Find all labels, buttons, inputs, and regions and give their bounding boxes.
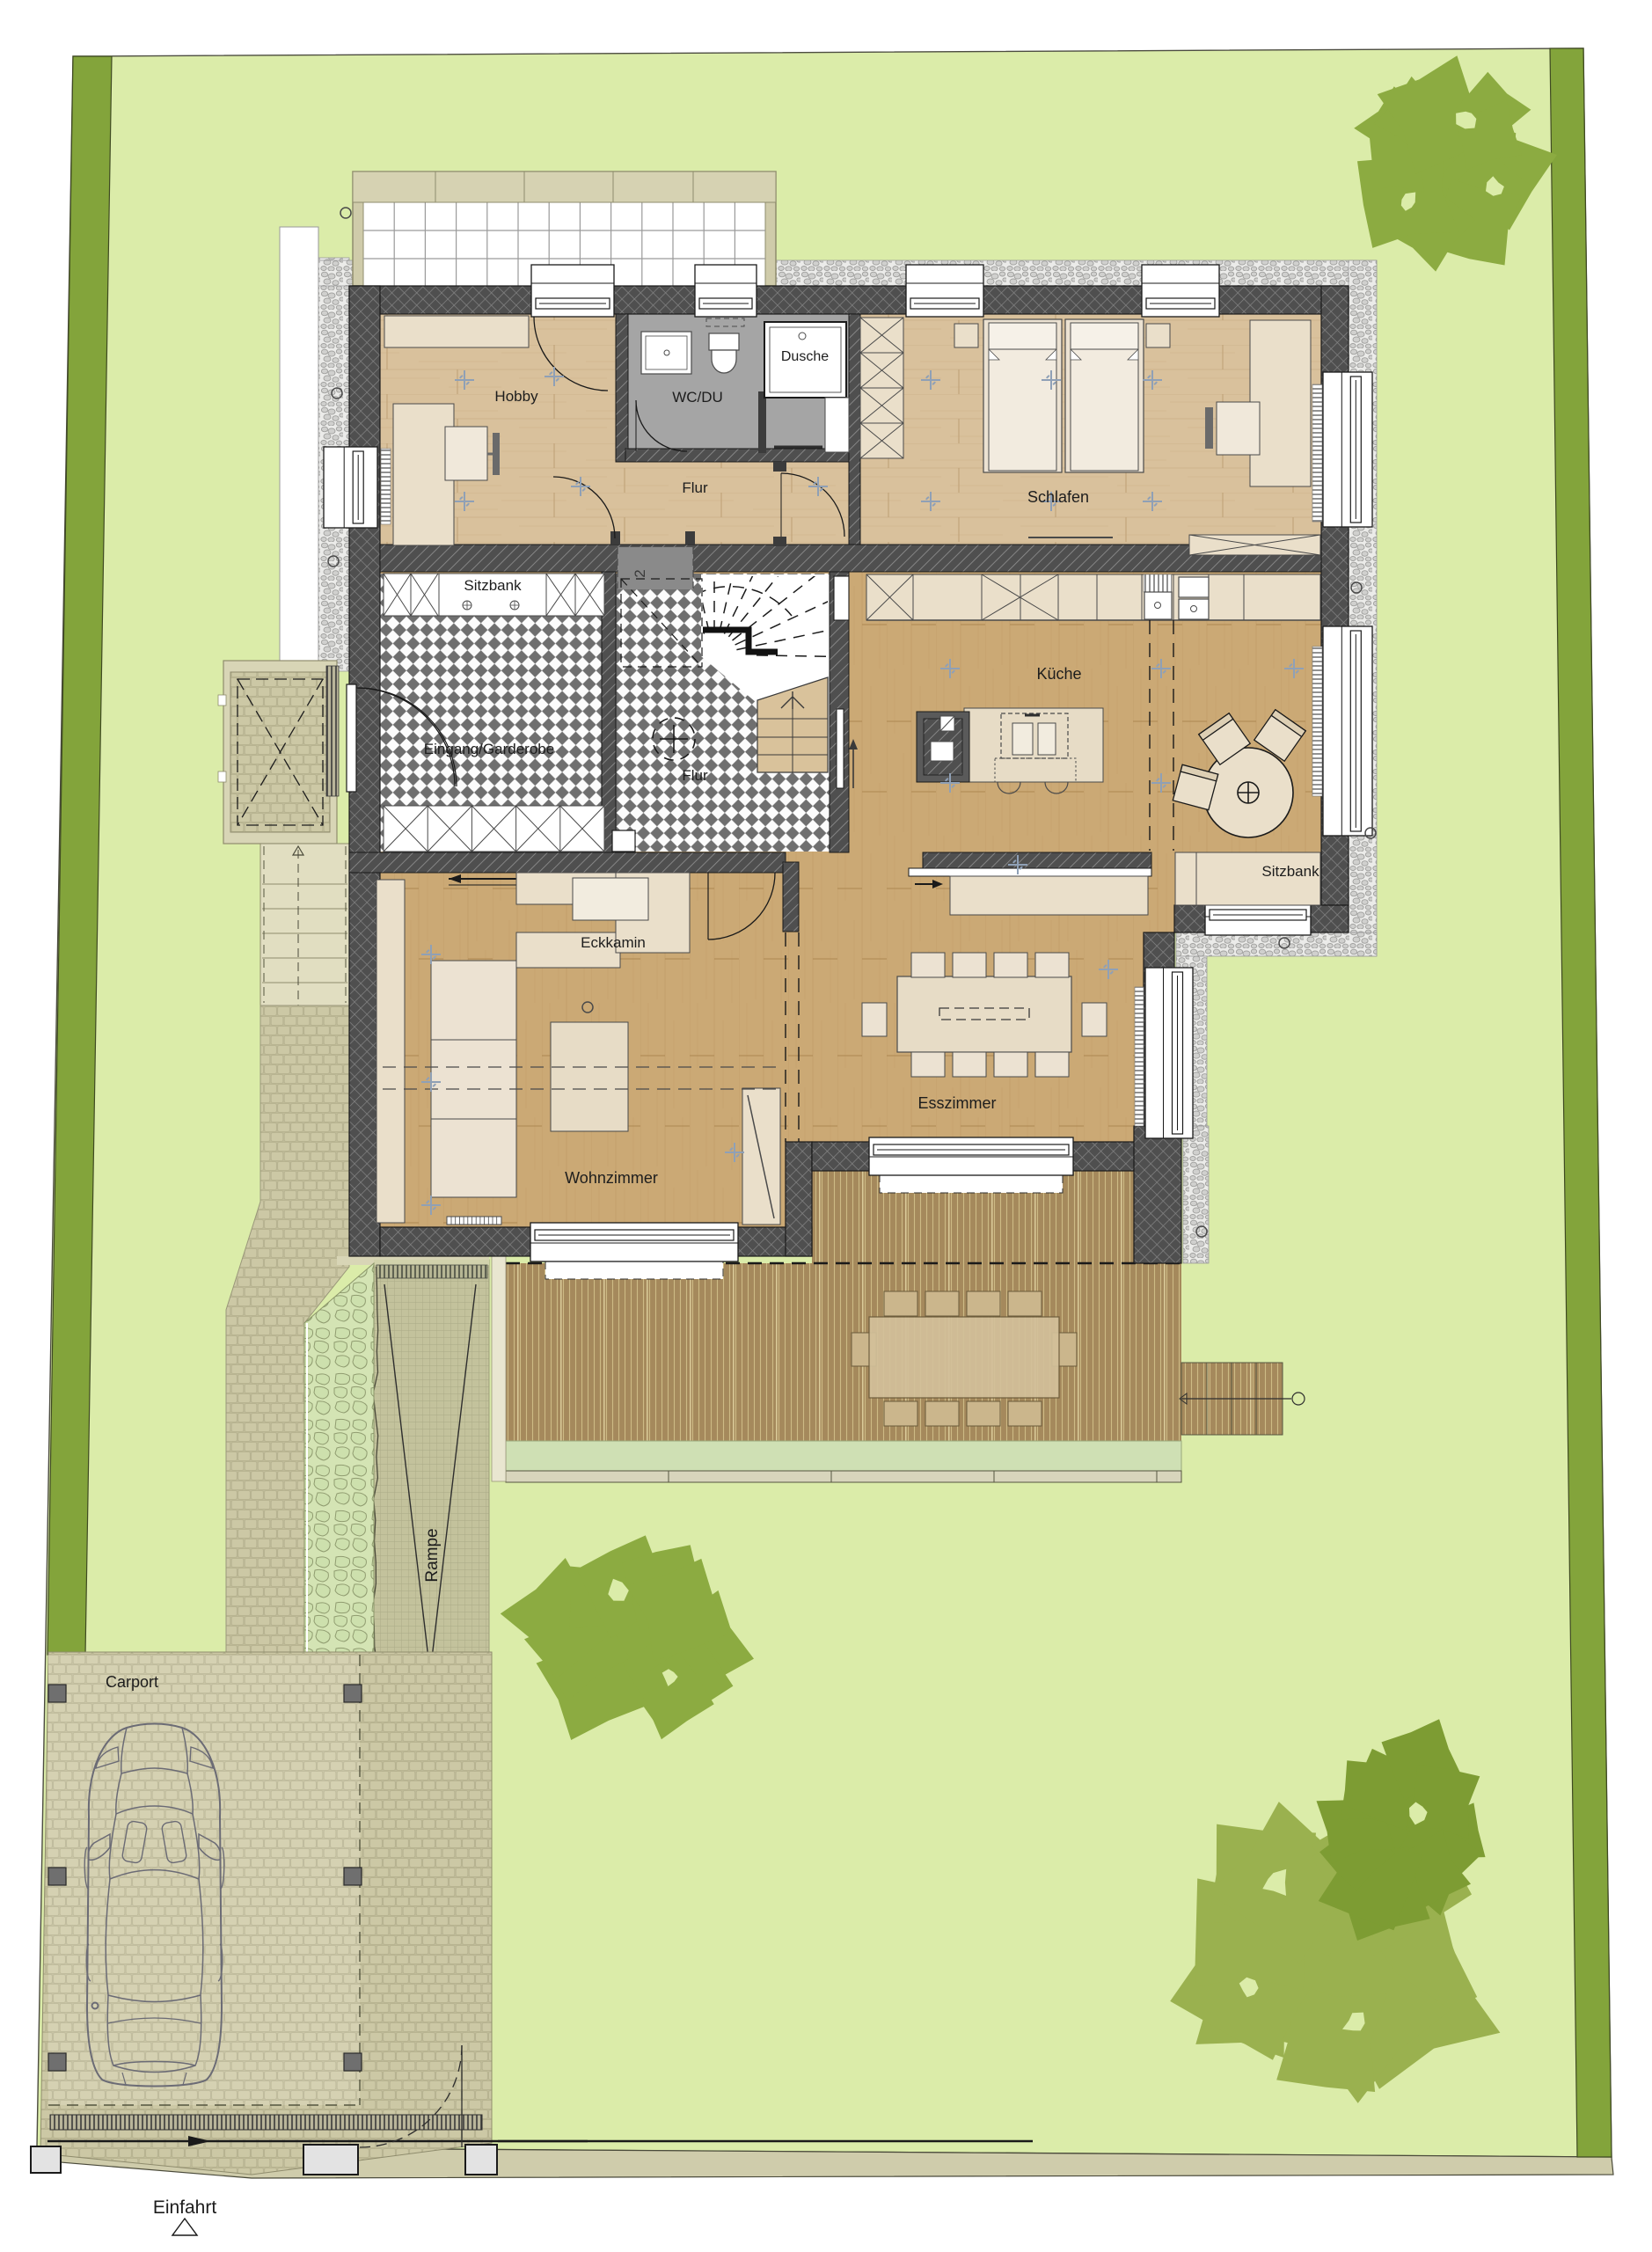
svg-text:Rampe: Rampe [423, 1528, 442, 1582]
svg-text:Einfahrt: Einfahrt [153, 2197, 217, 2218]
svg-text:Esszimmer: Esszimmer [918, 1094, 997, 1112]
svg-text:WC/DU: WC/DU [672, 389, 723, 406]
svg-text:Carport: Carport [106, 1673, 158, 1691]
svg-text:Schlafen: Schlafen [1027, 488, 1089, 506]
svg-text:Sitzbank: Sitzbank [1261, 863, 1319, 880]
svg-text:Hobby: Hobby [494, 388, 538, 405]
svg-text:2: 2 [632, 569, 648, 577]
svg-text:Wohnzimmer: Wohnzimmer [565, 1169, 658, 1187]
svg-text:Eckkamin: Eckkamin [581, 934, 646, 951]
svg-text:Eingang/Garderobe: Eingang/Garderobe [424, 741, 554, 757]
svg-text:Flur: Flur [682, 479, 708, 496]
svg-text:Küche: Küche [1036, 665, 1081, 683]
svg-text:Dusche: Dusche [781, 349, 829, 364]
svg-text:Sitzbank: Sitzbank [464, 577, 522, 594]
svg-text:Flur: Flur [682, 767, 708, 784]
